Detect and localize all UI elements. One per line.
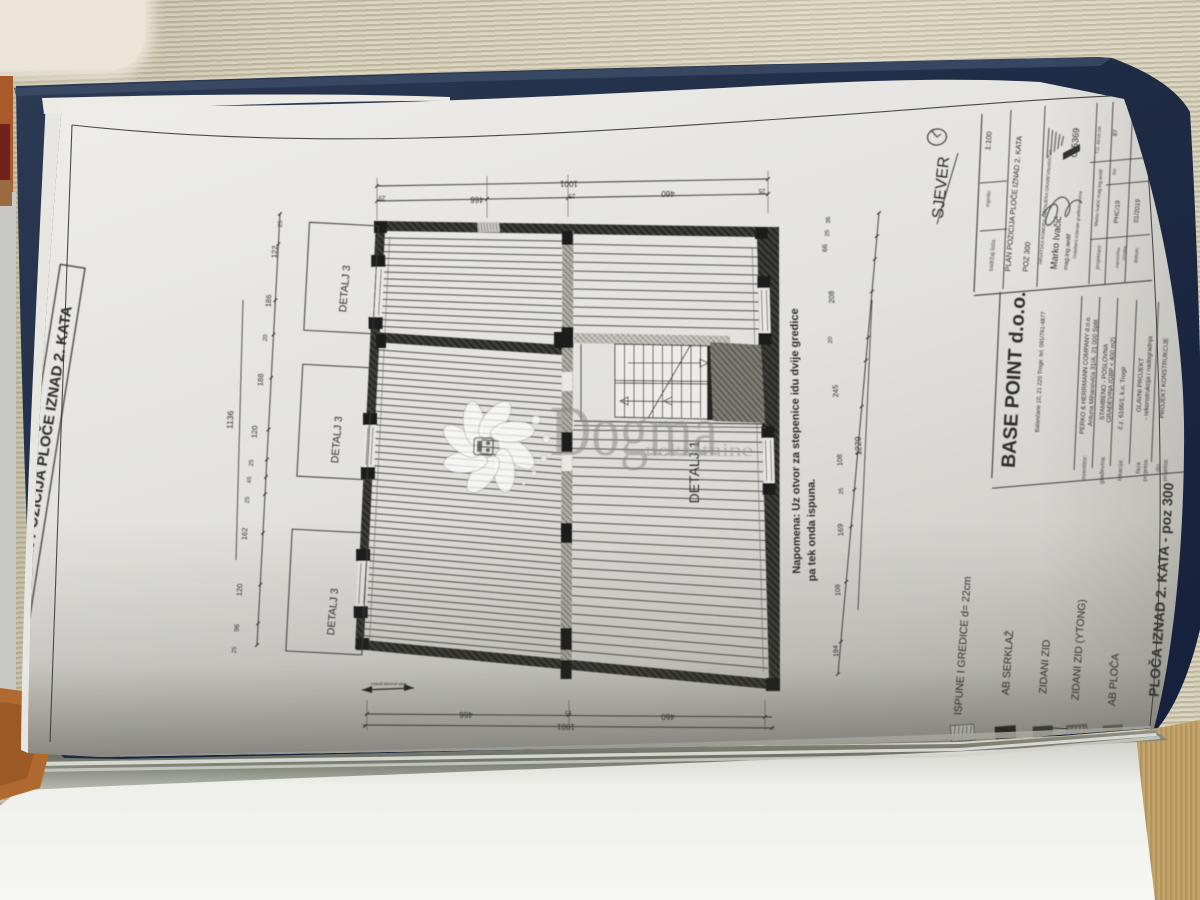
svg-text:36: 36: [826, 216, 832, 224]
svg-text:466: 466: [470, 195, 484, 204]
svg-text:25: 25: [245, 496, 251, 504]
svg-text:25: 25: [825, 229, 831, 237]
svg-text:245: 245: [831, 385, 840, 398]
svg-text:208: 208: [827, 291, 836, 304]
svg-text:25: 25: [249, 459, 255, 467]
svg-text:1001: 1001: [560, 179, 578, 188]
svg-text:45: 45: [247, 476, 253, 484]
svg-text:460: 460: [661, 189, 675, 198]
svg-text:186: 186: [264, 294, 274, 307]
svg-text:120: 120: [250, 425, 260, 438]
svg-text:1136: 1136: [225, 410, 236, 429]
svg-text:25: 25: [278, 220, 284, 228]
svg-text:25: 25: [839, 487, 845, 495]
svg-text:25: 25: [378, 194, 385, 200]
svg-text:1229: 1229: [853, 436, 864, 456]
svg-text:20: 20: [828, 336, 834, 344]
svg-text:122: 122: [270, 245, 280, 258]
svg-text:20: 20: [263, 334, 269, 342]
svg-text:1:100: 1:100: [983, 131, 994, 150]
svg-text:108: 108: [837, 454, 844, 466]
svg-text:25: 25: [758, 187, 765, 193]
svg-text:188: 188: [256, 373, 266, 386]
svg-text:nekretnine: nekretnine: [645, 440, 753, 460]
svg-text:25: 25: [568, 192, 575, 198]
svg-text:66: 66: [822, 244, 829, 252]
